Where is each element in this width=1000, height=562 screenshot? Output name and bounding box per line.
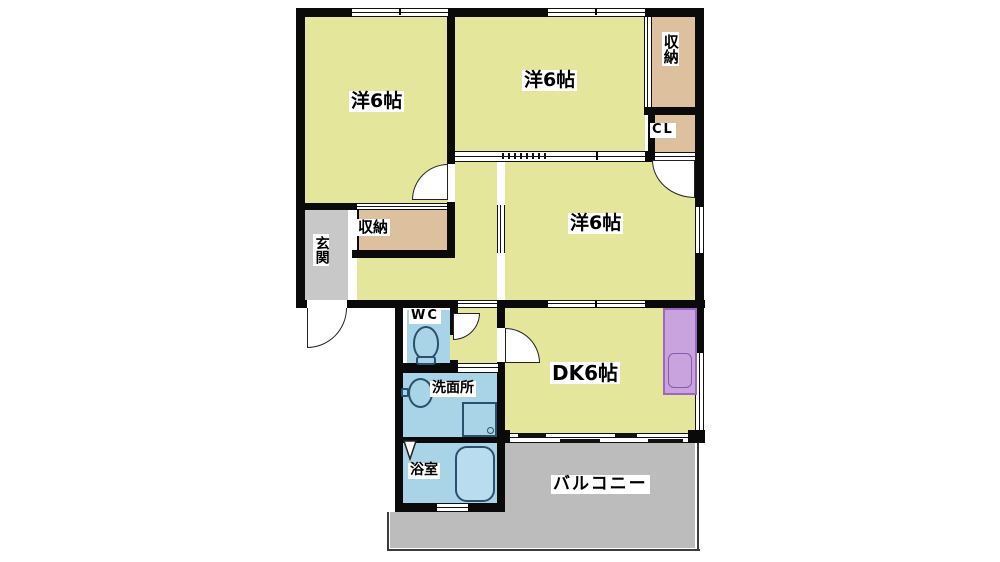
partition-hatch xyxy=(502,153,548,159)
drain-icon xyxy=(487,427,494,434)
storage-label: 収納 xyxy=(662,32,679,66)
bathroom-window xyxy=(437,503,468,512)
wall xyxy=(645,300,705,308)
wall xyxy=(352,250,453,258)
wall xyxy=(644,107,704,115)
room-label: 洋6帖 xyxy=(349,91,404,112)
room-label: 洋6帖 xyxy=(568,213,623,234)
bathroom-label: 浴室 xyxy=(408,463,440,479)
storage-sliding-door xyxy=(357,203,447,210)
wall xyxy=(296,8,305,308)
window-tick xyxy=(595,9,597,15)
storage-label: 収納 xyxy=(356,219,390,236)
sash-mark xyxy=(615,434,637,437)
balcony-area-west xyxy=(390,512,502,548)
balcony-outline xyxy=(387,549,700,551)
washroom-label: 洗面所 xyxy=(430,381,476,397)
hallway-area xyxy=(357,258,497,300)
wall xyxy=(447,8,455,164)
storage-sliding-door xyxy=(644,17,652,107)
wall xyxy=(497,430,510,443)
entrance-label: 玄関 xyxy=(313,234,329,266)
sash-mark xyxy=(648,439,683,442)
wall xyxy=(395,302,403,512)
room-label: 洋6帖 xyxy=(522,70,577,91)
wall xyxy=(296,300,307,308)
window-tick xyxy=(596,152,598,160)
window-tick xyxy=(399,9,401,15)
wall xyxy=(296,203,357,210)
bathtub-icon xyxy=(455,446,495,502)
bathroom-folding-door-icon xyxy=(402,440,418,461)
hall-opening xyxy=(458,300,497,308)
wall xyxy=(497,308,505,328)
kitchen-sink-icon xyxy=(668,353,692,388)
balcony-outline xyxy=(697,443,699,551)
wall xyxy=(497,300,548,308)
wc-label: WC xyxy=(409,309,441,324)
toilet-base-icon xyxy=(416,356,436,365)
sash-mark xyxy=(560,439,600,442)
door-arc-entrance xyxy=(307,308,347,348)
sash-mark xyxy=(518,434,546,437)
closet-label: CL xyxy=(650,123,676,138)
balcony-outline xyxy=(387,512,389,550)
wall xyxy=(688,430,705,443)
window xyxy=(695,207,704,253)
window-tick xyxy=(595,301,597,307)
sink-tap-icon xyxy=(401,388,409,397)
toilet-icon xyxy=(413,326,439,360)
floor-plan: 洋6帖 洋6帖 収納 CL 洋6帖 収納 玄関 WC 洗面所 DK6帖 浴室 バ… xyxy=(0,0,1000,562)
balcony-label: バルコニー xyxy=(551,475,650,494)
sliding-partition xyxy=(455,151,645,162)
washroom-opening xyxy=(458,363,498,373)
room-sliding-door xyxy=(497,205,505,253)
dk-label: DK6帖 xyxy=(550,362,620,384)
balcony-area xyxy=(502,443,695,548)
